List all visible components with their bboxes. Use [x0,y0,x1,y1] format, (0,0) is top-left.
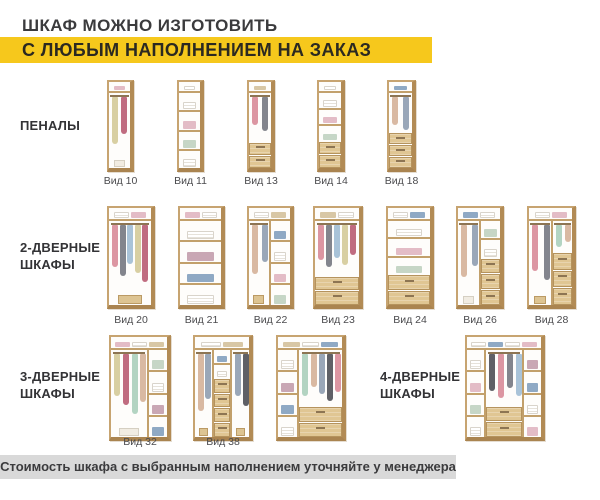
floor-item [463,296,475,304]
drawer-handle [218,427,227,429]
shelves-section [271,221,291,305]
cabinet-label: Вид 14 [303,175,359,187]
wardrobe-column [551,221,572,305]
top-shelf-item [535,212,550,217]
wardrobe [247,80,275,172]
shelf-compartment [214,350,231,365]
top-shelf-item [480,212,495,217]
top-shelf [111,337,167,350]
wardrobe [313,206,363,309]
shelf-compartment [524,350,541,372]
hanging-section [529,221,551,290]
cabinet-label: Вид 11 [163,175,218,187]
hanging-clothes [489,354,495,391]
drawer-stack [319,141,341,168]
shelf-compartment [467,350,484,372]
floor-item [236,428,245,436]
top-shelf-item [471,342,486,347]
shelf-compartment [524,417,541,437]
drawer-handle [256,159,265,161]
wardrobe-column [249,221,269,305]
floor-item [534,296,547,304]
drawer-handle [486,295,495,297]
wardrobe [178,206,225,309]
shelf-item [281,427,293,436]
shelves-section [149,350,167,437]
section-label-penaly: ПЕНАЛЫ [20,118,80,135]
cabinet-label: Вид 32 [95,436,185,448]
wardrobe [386,206,434,309]
shelf-item [281,405,293,414]
cabinet-label: Вид 28 [513,314,590,326]
shelf-compartment [319,110,341,127]
top-shelf-item [114,212,129,217]
drawer-handle [558,258,567,260]
shelf-compartment [524,372,541,394]
drawer [389,145,412,156]
hanging-clothes [319,354,325,394]
hanging-section [315,221,359,276]
drawer-handle [486,263,495,265]
hanging-clothes [472,225,478,266]
hanging-clothes [327,354,333,401]
shelf-item [527,360,538,369]
wardrobe [177,80,204,172]
wardrobe-column [522,350,541,437]
section-label-four-door: 4-ДВЕРНЫЕ ШКАФЫ [380,369,460,403]
floor-item [119,428,139,436]
shelf-item [187,274,213,283]
shelf-compartment [278,395,297,417]
wardrobe-interior [195,350,249,437]
wardrobe-column [180,221,221,305]
shelf-item [187,231,213,240]
shelf-compartment [481,240,500,258]
shelves-section [180,221,221,305]
wardrobe-interior [529,221,572,305]
drawer-handle [316,427,325,429]
drawer-handle [316,411,325,413]
hanging-clothes [135,225,141,273]
shelf-item [281,383,293,392]
drawer [481,290,500,305]
cabinet-label: Вид 38 [179,436,267,448]
cabinet-label: Вид 13 [233,175,289,187]
hanging-section [111,350,147,422]
top-shelf [319,82,341,93]
shelf-item [470,360,481,369]
hanging-clothes [132,354,138,414]
wardrobe [107,206,155,309]
hanging-clothes [335,354,341,392]
floor-section [458,290,479,305]
wardrobe-column [249,93,271,168]
drawer [299,407,342,421]
shelf-item [152,360,163,369]
wardrobe-column [315,221,359,305]
top-shelf [388,208,430,221]
hanging-clothes [114,354,120,396]
shelf-item [396,248,423,255]
drawer [249,156,271,168]
shelf-item [396,266,423,273]
hanging-clothes [544,225,550,281]
shelf-item [527,383,538,392]
hanging-clothes [392,97,398,124]
top-shelf-item [254,212,269,217]
floor-section [249,288,269,305]
wardrobe [456,206,504,309]
top-shelf [249,82,271,93]
hanging-clothes [556,225,562,248]
shelf-compartment [524,395,541,417]
cabinet-label: Вид 22 [233,314,308,326]
wardrobe-column [109,93,130,168]
drawer-stack [486,406,522,437]
shelf-item [183,121,196,129]
drawer [553,288,572,305]
top-shelf-item [115,342,130,347]
wardrobe-column [195,350,212,437]
drawer [388,275,430,289]
shelf-item [527,427,538,436]
wardrobe-column [388,221,430,305]
hanging-clothes [334,225,340,258]
wardrobe [527,206,576,309]
shelf-item [396,229,423,236]
wardrobe-column [230,350,249,437]
floor-item [118,295,142,304]
wardrobe [107,80,134,172]
drawer [319,155,341,168]
drawer [553,253,572,270]
drawer [249,143,271,155]
wardrobe [193,335,253,441]
shelf-compartment [271,221,291,243]
shelf-compartment [278,350,297,372]
drawer-stack [553,252,572,305]
main-title: ШКАФ МОЖНО ИЗГОТОВИТЬ [22,16,277,36]
hanging-clothes [532,225,538,271]
shelf-compartment [467,395,484,417]
drawer-handle [486,279,495,281]
floor-section [529,290,551,305]
drawer [214,379,231,393]
drawer-handle [396,149,405,151]
drawer-stack [299,406,342,437]
hanging-clothes [121,97,127,133]
drawer-handle [558,275,567,277]
top-shelf [529,208,572,221]
top-shelf-item [132,342,147,347]
drawer-stack [481,258,500,305]
shelf-item [470,405,481,414]
shelf-compartment [467,417,484,437]
wardrobe-interior [109,221,151,305]
top-shelf-item [522,342,537,347]
hanging-clothes [142,225,148,282]
shelf-item [187,295,213,304]
top-shelf-item [410,212,425,217]
wardrobe-column [479,221,500,305]
hanging-section [232,350,249,422]
drawer-handle [218,413,227,415]
wardrobe-interior [180,221,221,305]
section-label-two-door: 2-ДВЕРНЫЕ ШКАФЫ [20,240,100,274]
drawer-stack [214,378,231,437]
drawer [214,423,231,437]
hanging-clothes [326,225,332,267]
wardrobe-column [529,221,551,305]
hanging-clothes [311,354,317,387]
top-shelf-item [223,342,243,347]
hanging-clothes [235,354,241,396]
hanging-clothes [262,97,268,131]
floor-section [111,422,147,437]
drawer-handle [500,427,509,429]
drawer [481,274,500,289]
shelf-compartment [388,221,430,240]
drawer-handle [333,281,342,283]
shelf-compartment [180,264,221,286]
shelf-compartment [179,132,200,151]
hanging-clothes [302,354,308,396]
drawer [299,423,342,437]
top-shelf [278,337,342,350]
shelf-item [281,360,293,369]
shelf-compartment [149,395,167,417]
drawer [214,394,231,408]
wardrobe-interior [458,221,500,305]
hanging-clothes [498,354,504,398]
drawer [486,407,522,422]
shelf-item [470,383,481,392]
shelf-compartment [388,258,430,275]
wardrobe-interior [179,93,200,168]
top-shelf [109,82,130,93]
drawer [319,142,341,155]
hanging-clothes [123,354,129,405]
wardrobe-interior [109,93,130,168]
wardrobe-column [319,93,341,168]
hanging-clothes [403,97,409,129]
shelf-item [274,231,286,240]
shelves-section [179,93,200,168]
hanging-section [109,93,130,155]
wardrobe-column [109,221,151,305]
hanging-section [553,221,572,252]
shelf-item [183,102,196,110]
hanging-clothes [112,225,118,267]
hanging-section [486,350,522,406]
hanging-section [249,221,269,289]
top-shelf-item [393,212,408,217]
top-shelf [109,208,151,221]
wardrobe [109,335,171,441]
top-shelf-item [271,212,286,217]
wardrobe-column [179,93,200,168]
hanging-clothes [112,97,118,144]
wardrobe-column [212,350,231,437]
shelf-item [183,159,196,167]
shelf-item [187,252,213,261]
shelf-compartment [388,239,430,258]
cabinet-label: Вид 23 [299,314,377,326]
cabinet-label: Вид 21 [164,314,239,326]
footer-note: Стоимость шкафа с выбранным наполнением … [0,455,456,479]
wardrobe-column [389,93,412,168]
shelf-item [183,140,196,148]
wardrobe-interior [389,93,412,168]
drawer-stack [249,142,271,169]
cabinet-label: Вид 20 [93,314,169,326]
drawer-handle [218,398,227,400]
drawer-stack [315,276,359,305]
shelves-section [319,93,341,141]
floor-item [253,295,264,304]
cabinet-label: Вид 10 [93,175,148,187]
hanging-clothes [461,225,467,278]
drawer [315,277,359,291]
hanging-clothes [318,225,324,260]
top-shelf-item [394,86,407,90]
hanging-clothes [252,225,258,274]
top-shelf [315,208,359,221]
shelf-item [152,383,163,392]
hanging-clothes [507,354,513,388]
shelf-compartment [271,242,291,264]
shelves-section [467,350,484,437]
shelf-compartment [271,264,291,286]
top-shelf-item [185,212,200,217]
drawer-stack [388,274,430,305]
shelf-compartment [271,285,291,305]
page: ШКАФ МОЖНО ИЗГОТОВИТЬ С ЛЮБЫМ НАПОЛНЕНИЕ… [0,0,600,500]
hanging-section [249,93,271,141]
top-shelf-item [131,212,146,217]
drawer [388,291,430,305]
drawer-handle [405,295,414,297]
shelves-section [481,221,500,258]
shelf-item [274,295,286,304]
floor-section [109,290,151,306]
shelf-compartment [278,372,297,394]
top-shelf-item [320,212,336,217]
cabinet-label: Вид 24 [372,314,448,326]
drawer-handle [405,280,414,282]
shelf-compartment [149,350,167,372]
drawer [315,291,359,305]
shelf-item [527,405,538,414]
wardrobe-column [458,221,479,305]
wardrobe-interior [278,350,342,437]
drawer-handle [218,383,227,385]
floor-item [114,160,126,167]
shelf-compartment [149,417,167,437]
shelf-item [323,100,337,106]
wardrobe-column [467,350,484,437]
top-shelf-item [184,86,195,90]
shelf-item [274,252,286,261]
cabinet-label: Вид 26 [442,314,518,326]
drawer [389,133,412,144]
hanging-section [109,221,151,290]
top-shelf-item [463,212,478,217]
shelf-compartment [214,365,231,378]
cabinet-label: Вид 18 [373,175,430,187]
hanging-clothes [342,225,348,265]
shelves-section [278,350,297,437]
drawer-handle [396,160,405,162]
drawer [486,422,522,437]
shelf-compartment [467,372,484,394]
top-shelf [195,337,249,350]
top-shelf [180,208,221,221]
hanging-clothes [198,354,204,411]
wardrobe [465,335,545,441]
hanging-clothes [350,225,356,256]
top-shelf-item [302,342,319,347]
top-shelf [179,82,200,93]
hanging-clothes [120,225,126,276]
floor-section [109,155,130,168]
top-shelf-item [552,212,567,217]
shelf-compartment [319,126,341,141]
top-shelf [458,208,500,221]
hanging-clothes [565,225,571,242]
shelf-item [323,117,337,123]
shelf-item [152,427,163,436]
shelf-item [152,405,163,414]
top-shelf-item [114,86,125,90]
drawer-handle [333,295,342,297]
hanging-clothes [205,354,211,399]
drawer-handle [558,293,567,295]
shelf-compartment [180,221,221,243]
shelf-item [470,427,481,436]
shelf-item [484,229,496,237]
wardrobe-interior [315,221,359,305]
top-shelf-item [254,86,266,90]
wardrobe [317,80,345,172]
drawer-handle [396,137,405,139]
shelf-compartment [278,417,297,437]
top-shelf-item [201,342,221,347]
top-shelf-item [488,342,503,347]
hanging-clothes [252,97,258,125]
wardrobe-interior [319,93,341,168]
shelf-item [217,371,228,377]
floor-item [199,428,208,436]
hanging-clothes [243,354,249,406]
shelf-item [323,134,337,140]
wardrobe-column [484,350,522,437]
shelf-item [484,249,496,257]
hanging-section [195,350,212,422]
shelf-item [274,274,286,283]
floor-section [195,422,212,437]
shelf-compartment [481,221,500,241]
wardrobe [276,335,346,441]
wardrobe [387,80,416,172]
hanging-section [299,350,342,406]
wardrobe-column [111,350,147,437]
top-shelf [249,208,290,221]
top-shelf-item [149,342,164,347]
highlight-banner-text: С ЛЮБЫМ НАПОЛНЕНИЕМ НА ЗАКАЗ [22,37,371,63]
highlight-banner: С ЛЮБЫМ НАПОЛНЕНИЕМ НА ЗАКАЗ [0,37,432,63]
wardrobe [247,206,294,309]
